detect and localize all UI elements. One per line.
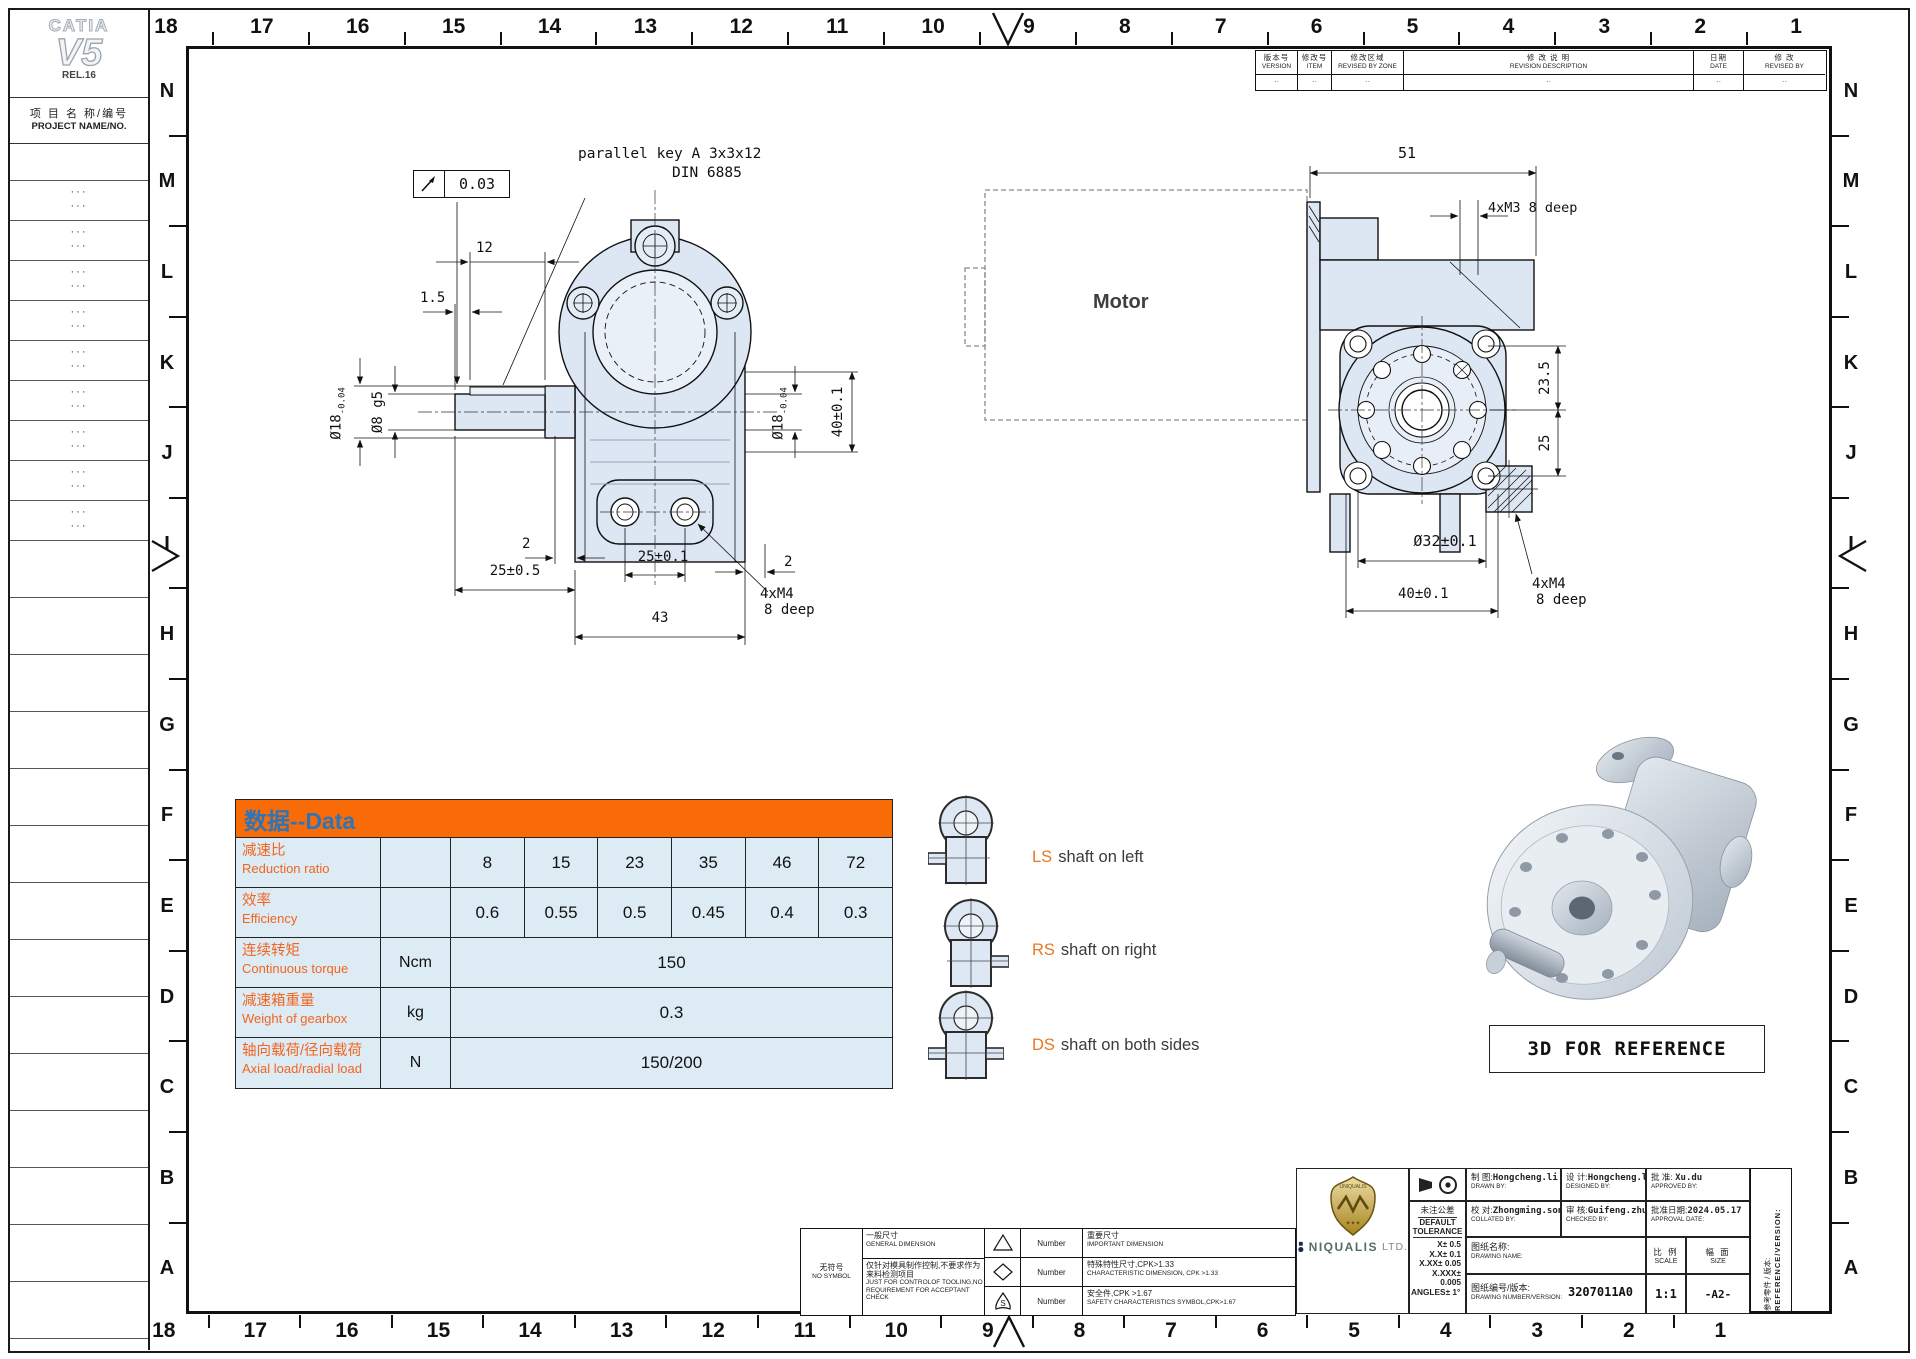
- sidebar-row: ······: [10, 301, 148, 341]
- company-logo-cell: UNIQUALIS ✦✦✦ NIQUALIS LTD.: [1296, 1168, 1409, 1314]
- grid-row: C: [1832, 1042, 1870, 1133]
- grid-col: 15: [406, 10, 502, 46]
- approved-by-cell: 批 准: Xu.du APPROVED BY:: [1646, 1168, 1750, 1201]
- triangle-symbol-icon: [985, 1229, 1021, 1257]
- shaft-rs-icon: [933, 896, 1009, 992]
- grid-col: 2: [1652, 10, 1748, 46]
- symbols-legend-general: 无符号 NO SYMBOL 一般尺寸 GENERAL DIMENSION 仅针对…: [800, 1228, 985, 1316]
- sidebar-row: [10, 1225, 148, 1282]
- project-name-header: 项 目 名 称/编号 PROJECT NAME/NO.: [10, 98, 148, 144]
- rev-col-description: 修 改 说 明REVISION DESCRIPTION: [1404, 51, 1694, 75]
- dim-43: 43: [630, 610, 690, 626]
- 3d-reference-label: 3D FOR REFERENCE: [1527, 1038, 1726, 1060]
- dim-4xm4-front: 4xM4: [760, 586, 794, 602]
- grid-col: 10: [851, 1314, 943, 1350]
- sidebar: CATIA V5 REL.16 项 目 名 称/编号 PROJECT NAME/…: [10, 10, 150, 1350]
- grid-row: A: [1832, 1224, 1870, 1315]
- collated-by-cell: 校 对:Zhongming.song COLLATED BY:: [1466, 1201, 1561, 1237]
- dim-2b: 2: [784, 554, 792, 570]
- dim-dia32: Ø32±0.1: [1390, 532, 1500, 550]
- rev-val: ··: [1332, 75, 1404, 90]
- company-name: NIQUALIS LTD.: [1297, 1239, 1408, 1255]
- grid-col: 17: [214, 10, 310, 46]
- rev-col-revisedby: 修 改REVISED BY: [1744, 51, 1825, 75]
- dim-dia18-left: Ø18-0.04: [329, 377, 348, 449]
- dim-40-side: 40±0.1: [1398, 586, 1449, 602]
- symbol-row-important: Number 重要尺寸IMPORTANT DIMENSION: [985, 1229, 1295, 1258]
- tolerance-value: 0.03: [445, 171, 509, 197]
- grid-row: E: [148, 861, 186, 952]
- grid-row: N: [148, 46, 186, 137]
- grid-col: 10: [885, 10, 981, 46]
- dim-dia8: Ø8 g5: [370, 376, 386, 448]
- sidebar-empty-row: [10, 144, 148, 181]
- size-header-cell: 幅 面SIZE: [1686, 1237, 1750, 1274]
- grid-rows-left: NMLKJIHGFEDCBA: [148, 46, 186, 1314]
- shaft-ds-icon: [928, 988, 1004, 1084]
- grid-row: M: [148, 137, 186, 228]
- dim-2a: 2: [522, 536, 530, 552]
- grid-row: B: [148, 1133, 186, 1224]
- grid-col: 11: [759, 1314, 851, 1350]
- grid-col: 17: [210, 1314, 302, 1350]
- sidebar-row: [10, 655, 148, 712]
- grid-columns-top: 181716151413121110987654321: [118, 10, 1844, 46]
- sidebar-row: [10, 541, 148, 598]
- grid-col: 8: [1077, 10, 1173, 46]
- projection-symbol-cell: [1409, 1168, 1466, 1201]
- gearbox-3d-render: [1470, 712, 1770, 1032]
- grid-row: C: [148, 1042, 186, 1133]
- grid-col: 5: [1365, 10, 1461, 46]
- grid-row: I: [1832, 499, 1870, 590]
- checked-by-cell: 审 核:Guifeng.zhuo CHECKED BY:: [1561, 1201, 1646, 1237]
- grid-row: E: [1832, 861, 1870, 952]
- dim-dia18-right: Ø18-0.04: [771, 377, 790, 449]
- drawing-sheet: CATIA V5 REL.16 项 目 名 称/编号 PROJECT NAME/…: [0, 0, 1916, 1359]
- grid-col: 1: [1675, 1314, 1767, 1350]
- safety-symbol-icon: S: [985, 1287, 1021, 1315]
- sidebar-row: [10, 1111, 148, 1168]
- sidebar-row: [10, 883, 148, 940]
- rev-val: ··: [1744, 75, 1825, 90]
- grid-row: F: [148, 771, 186, 862]
- grid-row: K: [148, 318, 186, 409]
- approval-date-cell: 批准日期:2024.05.17 APPROVAL DATE:: [1646, 1201, 1750, 1237]
- geometric-tolerance-frame: 0.03: [413, 170, 510, 198]
- drawing-number-cell: 图纸编号/版本: DRAWING NUMBER/VERSION: 3207011…: [1466, 1274, 1646, 1314]
- grid-col: 13: [597, 10, 693, 46]
- grid-col: 7: [1173, 10, 1269, 46]
- grid-col: 4: [1400, 1314, 1492, 1350]
- grid-col: 9: [942, 1314, 1034, 1350]
- projection-method-icon: [1415, 1173, 1461, 1197]
- company-shield-logo: UNIQUALIS ✦✦✦: [1327, 1175, 1379, 1237]
- sidebar-row: ······: [10, 261, 148, 301]
- sidebar-row: ······: [10, 221, 148, 261]
- symbols-legend-special: Number 重要尺寸IMPORTANT DIMENSION Number 特殊…: [985, 1228, 1296, 1316]
- revision-table: 版本号VERSION 修改号ITEM 修改区域REVISED BY ZONE 修…: [1255, 50, 1827, 91]
- grid-col: 16: [310, 10, 406, 46]
- grid-row: F: [1832, 771, 1870, 862]
- sidebar-row: ······: [10, 181, 148, 221]
- grid-row: D: [1832, 952, 1870, 1043]
- scale-value-cell: 1:1: [1646, 1274, 1686, 1314]
- drawing-name-cell: 图纸名称: DRAWING NAME:: [1466, 1237, 1646, 1274]
- symbol-row-safety: S Number 安全件,CPK >1.67SAFETY CHARACTERIS…: [985, 1287, 1295, 1315]
- tooling-note-cell: 仅针对模具制作控制,不要求作为来料检测项目 JUST FOR CONTROLOF…: [863, 1259, 984, 1315]
- grid-col: 15: [393, 1314, 485, 1350]
- scale-header-cell: 比 例SCALE: [1646, 1237, 1686, 1274]
- dim-4xm3: 4xM3 8 deep: [1488, 200, 1577, 216]
- sidebar-row: ······: [10, 421, 148, 461]
- drawing-number-value: 3207011A0: [1568, 1285, 1633, 1299]
- svg-text:✦✦✦: ✦✦✦: [1345, 1220, 1360, 1227]
- size-value-cell: -A2-: [1686, 1274, 1750, 1314]
- rev-val: ··: [1404, 75, 1694, 90]
- grid-col: 6: [1217, 1314, 1309, 1350]
- grid-col: 4: [1460, 10, 1556, 46]
- sidebar-row: [10, 826, 148, 883]
- grid-col: 12: [667, 1314, 759, 1350]
- company-mark-icon: [1297, 1239, 1305, 1255]
- grid-col: 5: [1308, 1314, 1400, 1350]
- grid-row: H: [148, 589, 186, 680]
- svg-text:S: S: [1000, 1299, 1005, 1308]
- grid-col: 12: [693, 10, 789, 46]
- grid-col: 3: [1491, 1314, 1583, 1350]
- sidebar-row: ······: [10, 381, 148, 421]
- grid-col: 16: [301, 1314, 393, 1350]
- grid-row: L: [1832, 227, 1870, 318]
- grid-col: 14: [502, 10, 598, 46]
- rev-col-version: 版本号VERSION: [1256, 51, 1298, 75]
- 3d-reference-box: 3D FOR REFERENCE: [1489, 1025, 1765, 1073]
- grid-col: 9: [981, 10, 1077, 46]
- dim-25-side: 25: [1537, 407, 1553, 479]
- grid-row: M: [1832, 137, 1870, 228]
- grid-row: N: [1832, 46, 1870, 137]
- sidebar-row: ······: [10, 461, 148, 501]
- sidebar-row: ······: [10, 341, 148, 381]
- dim-4xm4-side: 4xM4: [1532, 576, 1566, 592]
- no-symbol-cell: 无符号 NO SYMBOL: [801, 1229, 863, 1315]
- rev-col-date: 日期DATE: [1694, 51, 1744, 75]
- grid-col: 13: [576, 1314, 668, 1350]
- key-note-line2: DIN 6885: [672, 165, 742, 181]
- shaft-ls-icon: [928, 793, 1004, 889]
- grid-row: A: [148, 1224, 186, 1315]
- grid-col: 3: [1556, 10, 1652, 46]
- side-view-drawing: [960, 140, 1600, 670]
- rev-val: ··: [1694, 75, 1744, 90]
- grid-row: B: [1832, 1133, 1870, 1224]
- grid-col: 7: [1125, 1314, 1217, 1350]
- dim-40-front: 40±0.1: [830, 376, 846, 448]
- grid-row: L: [148, 227, 186, 318]
- grid-row: H: [1832, 589, 1870, 680]
- grid-col: 11: [789, 10, 885, 46]
- dim-1_5: 1.5: [420, 290, 445, 306]
- table-row-weight: 减速箱重量Weight of gearbox kg 0.3: [236, 988, 892, 1038]
- symbol-row-characteristic: Number 特殊特性尺寸,CPK>1.33CHARACTERISTIC DIM…: [985, 1258, 1295, 1287]
- sidebar-row: [10, 1054, 148, 1111]
- slope-tolerance-icon: [414, 171, 445, 197]
- sidebar-row: [10, 769, 148, 826]
- sidebar-row: [10, 940, 148, 997]
- rev-val: ··: [1256, 75, 1298, 90]
- project-name-en: PROJECT NAME/NO.: [10, 121, 148, 132]
- svg-text:UNIQUALIS: UNIQUALIS: [1339, 1184, 1367, 1190]
- grid-rows-right: NMLKJIHGFEDCBA: [1832, 46, 1870, 1314]
- grid-row: I: [148, 499, 186, 590]
- sidebar-row: [10, 712, 148, 769]
- rev-col-item: 修改号ITEM: [1298, 51, 1332, 75]
- reference-version-strip: 参考零件 / 版本: REFERENCE/VERSION:: [1750, 1168, 1792, 1314]
- table-row-efficiency: 效率Efficiency 0.6 0.55 0.5 0.45 0.4 0.3: [236, 888, 892, 938]
- catia-release: REL.16: [10, 70, 148, 81]
- sidebar-row: [10, 997, 148, 1054]
- general-dimension-cell: 一般尺寸 GENERAL DIMENSION: [863, 1229, 984, 1259]
- grid-col: 18: [118, 1314, 210, 1350]
- dim-8deep-front: 8 deep: [764, 602, 815, 618]
- data-table-header: 数据--Data: [236, 800, 892, 838]
- grid-col: 2: [1583, 1314, 1675, 1350]
- sidebar-row: [10, 1168, 148, 1225]
- grid-col: 8: [1034, 1314, 1126, 1350]
- dim-25-01: 25±0.1: [623, 549, 703, 565]
- default-tolerance-cell: 未注公差 DEFAULT TOLERANCE X± 0.5 X.X± 0.1 X…: [1409, 1201, 1466, 1314]
- shaft-rs-label: RSshaft on right: [1032, 941, 1156, 960]
- grid-row: G: [148, 680, 186, 771]
- grid-col: 18: [118, 10, 214, 46]
- rev-val: ··: [1298, 75, 1332, 90]
- drawn-by-cell: 制 图:Hongcheng.li DRAWN BY:: [1466, 1168, 1561, 1201]
- grid-row: D: [148, 952, 186, 1043]
- dim-8deep-side: 8 deep: [1536, 592, 1587, 608]
- grid-row: J: [148, 408, 186, 499]
- table-row-reduction-ratio: 减速比Reduction ratio 8 15 23 35 46 72: [236, 838, 892, 888]
- project-name-zh: 项 目 名 称/编号: [10, 105, 148, 121]
- grid-row: K: [1832, 318, 1870, 409]
- shaft-ds-label: DSshaft on both sides: [1032, 1036, 1199, 1055]
- sidebar-row: [10, 598, 148, 655]
- table-row-torque: 连续转矩Continuous torque Ncm 150: [236, 938, 892, 988]
- dim-23-5: 23.5: [1537, 342, 1553, 414]
- sidebar-row: ······: [10, 501, 148, 541]
- data-table: 数据--Data 减速比Reduction ratio 8 15 23 35 4…: [235, 799, 893, 1089]
- data-table-title: 数据--Data: [244, 802, 355, 836]
- key-note-line1: parallel key A 3x3x12: [578, 146, 761, 162]
- rev-col-zone: 修改区域REVISED BY ZONE: [1332, 51, 1404, 75]
- grid-col: 14: [484, 1314, 576, 1350]
- dim-12: 12: [476, 240, 493, 256]
- table-row-load: 轴向载荷/径向载荷Axial load/radial load N 150/20…: [236, 1038, 892, 1088]
- grid-columns-bottom: 181716151413121110987654321: [118, 1314, 1766, 1350]
- grid-col: 6: [1269, 10, 1365, 46]
- motor-label: Motor: [1093, 291, 1149, 314]
- dim-25-05: 25±0.5: [475, 563, 555, 579]
- grid-row: G: [1832, 680, 1870, 771]
- designed-by-cell: 设 计:Hongcheng.li DESIGNED BY:: [1561, 1168, 1646, 1201]
- diamond-symbol-icon: [985, 1258, 1021, 1286]
- shaft-ls-label: LSshaft on left: [1032, 848, 1144, 867]
- grid-row: J: [1832, 408, 1870, 499]
- grid-col: 1: [1748, 10, 1844, 46]
- dim-51: 51: [1398, 144, 1416, 162]
